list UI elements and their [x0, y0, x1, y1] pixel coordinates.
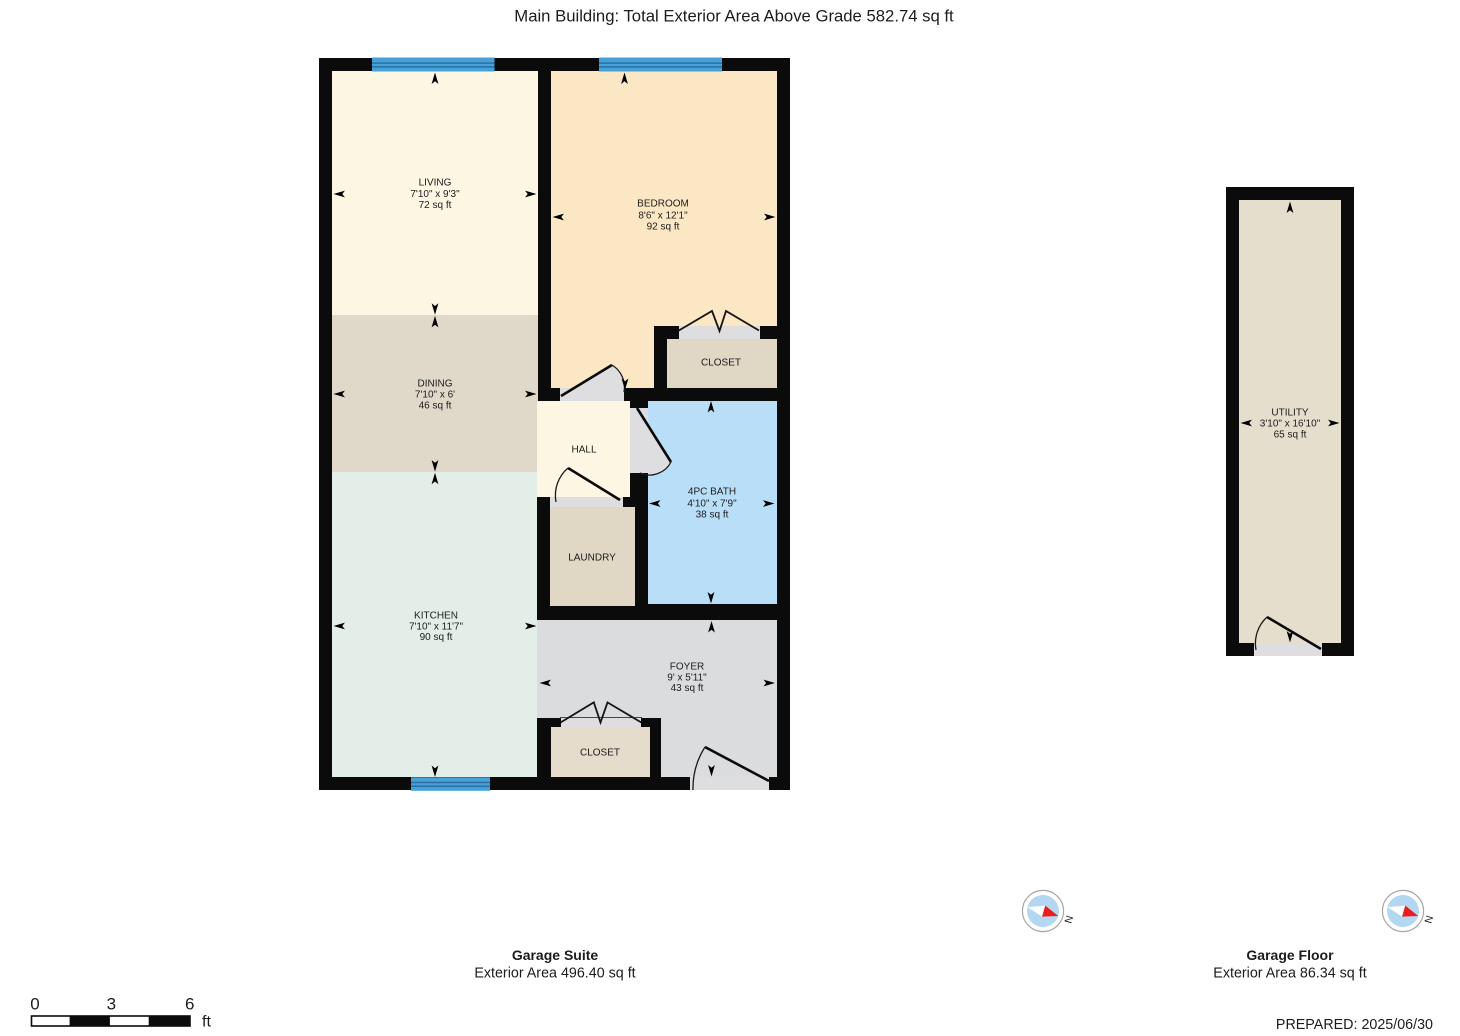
svg-text:CLOSET: CLOSET [580, 748, 620, 759]
svg-text:3'10" x 16'10": 3'10" x 16'10" [1260, 419, 1321, 430]
svg-text:9' x 5'11": 9' x 5'11" [667, 673, 707, 684]
svg-text:BEDROOM: BEDROOM [637, 199, 689, 210]
svg-text:8'6" x 12'1": 8'6" x 12'1" [638, 211, 688, 222]
svg-text:HALL: HALL [571, 445, 596, 456]
svg-text:Main Building: Total Exterior: Main Building: Total Exterior Area Above… [514, 7, 954, 26]
svg-text:DINING: DINING [418, 379, 453, 390]
svg-text:Garage Suite: Garage Suite [512, 947, 599, 963]
svg-text:KITCHEN: KITCHEN [414, 611, 458, 622]
svg-text:7'10" x 6': 7'10" x 6' [415, 390, 455, 401]
svg-text:LAUNDRY: LAUNDRY [568, 553, 616, 564]
svg-text:LIVING: LIVING [419, 178, 452, 189]
svg-text:90 sq ft: 90 sq ft [420, 632, 453, 643]
svg-text:3: 3 [107, 995, 116, 1014]
svg-text:Exterior Area 496.40 sq ft: Exterior Area 496.40 sq ft [474, 966, 635, 982]
svg-text:Exterior Area 86.34 sq ft: Exterior Area 86.34 sq ft [1213, 966, 1366, 982]
svg-text:ft: ft [202, 1014, 211, 1031]
svg-text:Garage Floor: Garage Floor [1246, 947, 1334, 963]
svg-text:7'10" x 11'7": 7'10" x 11'7" [409, 622, 464, 633]
svg-text:46 sq ft: 46 sq ft [419, 401, 452, 412]
svg-text:UTILITY: UTILITY [1271, 408, 1309, 419]
svg-text:7'10" x 9'3": 7'10" x 9'3" [410, 189, 460, 200]
svg-text:PREPARED: 2025/06/30: PREPARED: 2025/06/30 [1276, 1017, 1433, 1033]
svg-text:43 sq ft: 43 sq ft [671, 683, 704, 694]
svg-text:4'10" x 7'9": 4'10" x 7'9" [687, 499, 737, 510]
svg-text:65 sq ft: 65 sq ft [1274, 430, 1307, 441]
svg-text:6: 6 [185, 995, 194, 1014]
svg-text:CLOSET: CLOSET [701, 358, 741, 369]
svg-text:92 sq ft: 92 sq ft [647, 222, 680, 233]
svg-text:0: 0 [30, 995, 39, 1014]
svg-text:FOYER: FOYER [670, 662, 704, 673]
svg-text:72 sq ft: 72 sq ft [419, 200, 452, 211]
svg-text:38 sq ft: 38 sq ft [696, 510, 729, 521]
svg-text:4PC BATH: 4PC BATH [688, 487, 736, 498]
